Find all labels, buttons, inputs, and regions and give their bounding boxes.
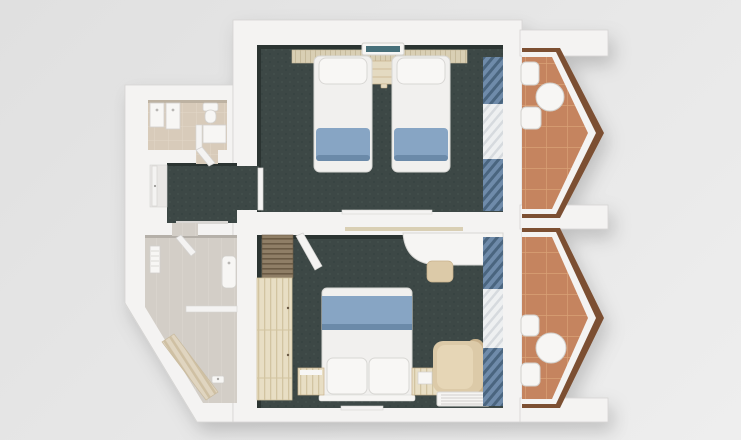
door-threshold: [342, 210, 432, 214]
curtain-sheer: [483, 289, 503, 351]
partition-wall: [186, 306, 237, 312]
nightstand-left: [298, 368, 324, 395]
window-curtains: [483, 237, 503, 406]
open-door-leaf: [258, 168, 263, 210]
bed-runner-shade: [394, 155, 448, 161]
wardrobe: [257, 278, 292, 400]
floor-wall-shadow: [148, 100, 227, 103]
door-threshold: [341, 406, 383, 410]
entry-door: [150, 165, 167, 207]
curtain-blue: [483, 57, 503, 107]
floorplan-svg: [0, 0, 741, 440]
balcony-round-table: [536, 333, 566, 363]
shower-tray: [203, 125, 226, 143]
curtain-sheer: [483, 104, 503, 162]
door-opening: [237, 166, 259, 210]
balcony-chair: [521, 363, 540, 386]
pillow: [319, 58, 367, 84]
pillow: [327, 358, 367, 394]
sink: [222, 256, 236, 288]
toilet: [203, 103, 218, 123]
faucet: [212, 376, 224, 383]
bed-runner-shade: [316, 155, 370, 161]
bathroom-bottom: [145, 223, 237, 403]
double-room: [257, 227, 503, 410]
ac-unit: [362, 43, 404, 55]
vanity-1: [150, 103, 164, 127]
window-curtains: [483, 57, 503, 211]
luggage-rack: [262, 235, 293, 278]
towel-radiator: [150, 246, 160, 273]
bed-runner-shade: [322, 324, 412, 330]
floorplan-render: [0, 0, 741, 440]
pillow: [397, 58, 445, 84]
twin-bed-right: [392, 56, 450, 172]
double-bed: [319, 288, 415, 401]
floor-vent: [437, 392, 490, 406]
balcony-chair: [521, 62, 539, 85]
hallway-carpet: [167, 163, 237, 223]
stool: [427, 261, 453, 282]
curtain-blue: [483, 348, 503, 406]
balcony-chair: [521, 107, 541, 129]
armchair: [433, 339, 484, 395]
partition-stub: [196, 125, 202, 150]
headboard: [319, 395, 415, 401]
pillow: [369, 358, 409, 394]
curtain-blue: [483, 159, 503, 211]
balcony-chair: [521, 315, 539, 336]
twin-bed-left: [314, 56, 372, 172]
door-opening: [172, 223, 198, 236]
curtain-blue: [483, 237, 503, 292]
twin-room: [237, 43, 503, 214]
curtain-pelmet: [345, 227, 463, 231]
vanity-2: [166, 103, 180, 129]
balcony-round-table: [536, 83, 564, 111]
